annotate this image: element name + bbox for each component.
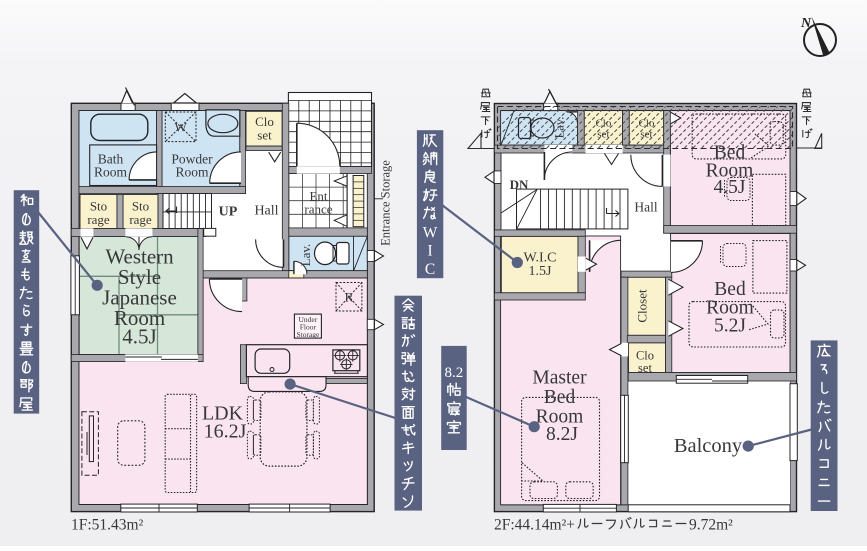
svg-text:16.2J: 16.2J bbox=[204, 421, 247, 443]
svg-text:Room: Room bbox=[94, 164, 128, 179]
svg-text:UP: UP bbox=[219, 205, 238, 220]
svg-text:Bed: Bed bbox=[544, 387, 576, 408]
svg-text:2F:44.14m²+: 2F:44.14m²+ bbox=[494, 517, 575, 534]
svg-text:Entrance Storage: Entrance Storage bbox=[379, 160, 393, 246]
svg-text:set: set bbox=[257, 128, 272, 143]
svg-text:Hall: Hall bbox=[254, 204, 278, 219]
svg-text:8.2: 8.2 bbox=[445, 365, 464, 381]
svg-text:1.5J: 1.5J bbox=[529, 264, 553, 279]
svg-text:DN: DN bbox=[510, 177, 529, 192]
svg-text:W: W bbox=[174, 120, 187, 135]
svg-text:rance: rance bbox=[304, 202, 332, 217]
svg-text:Room: Room bbox=[175, 164, 209, 179]
svg-text:R: R bbox=[345, 290, 354, 305]
svg-text:Storage: Storage bbox=[296, 330, 320, 339]
svg-text:I: I bbox=[428, 243, 433, 260]
svg-text:Balcony: Balcony bbox=[674, 435, 743, 457]
svg-text:4.5J: 4.5J bbox=[714, 177, 746, 198]
svg-text:Hall: Hall bbox=[634, 200, 657, 215]
svg-text:5.2J: 5.2J bbox=[714, 316, 746, 337]
svg-text:8.2J: 8.2J bbox=[546, 424, 578, 445]
svg-text:set: set bbox=[638, 361, 652, 375]
svg-text:9.72m²: 9.72m² bbox=[689, 517, 733, 534]
svg-text:1F:51.43m²: 1F:51.43m² bbox=[71, 517, 144, 534]
svg-text:Master: Master bbox=[532, 368, 587, 389]
svg-text:rage: rage bbox=[87, 212, 110, 227]
svg-text:C: C bbox=[425, 261, 435, 278]
svg-text:Closet: Closet bbox=[635, 289, 650, 323]
svg-text:Lav.: Lav. bbox=[298, 244, 313, 267]
svg-text:4.5J: 4.5J bbox=[122, 325, 156, 349]
svg-text:rage: rage bbox=[129, 212, 152, 227]
svg-text:N: N bbox=[800, 16, 812, 31]
svg-text:W: W bbox=[423, 225, 438, 242]
